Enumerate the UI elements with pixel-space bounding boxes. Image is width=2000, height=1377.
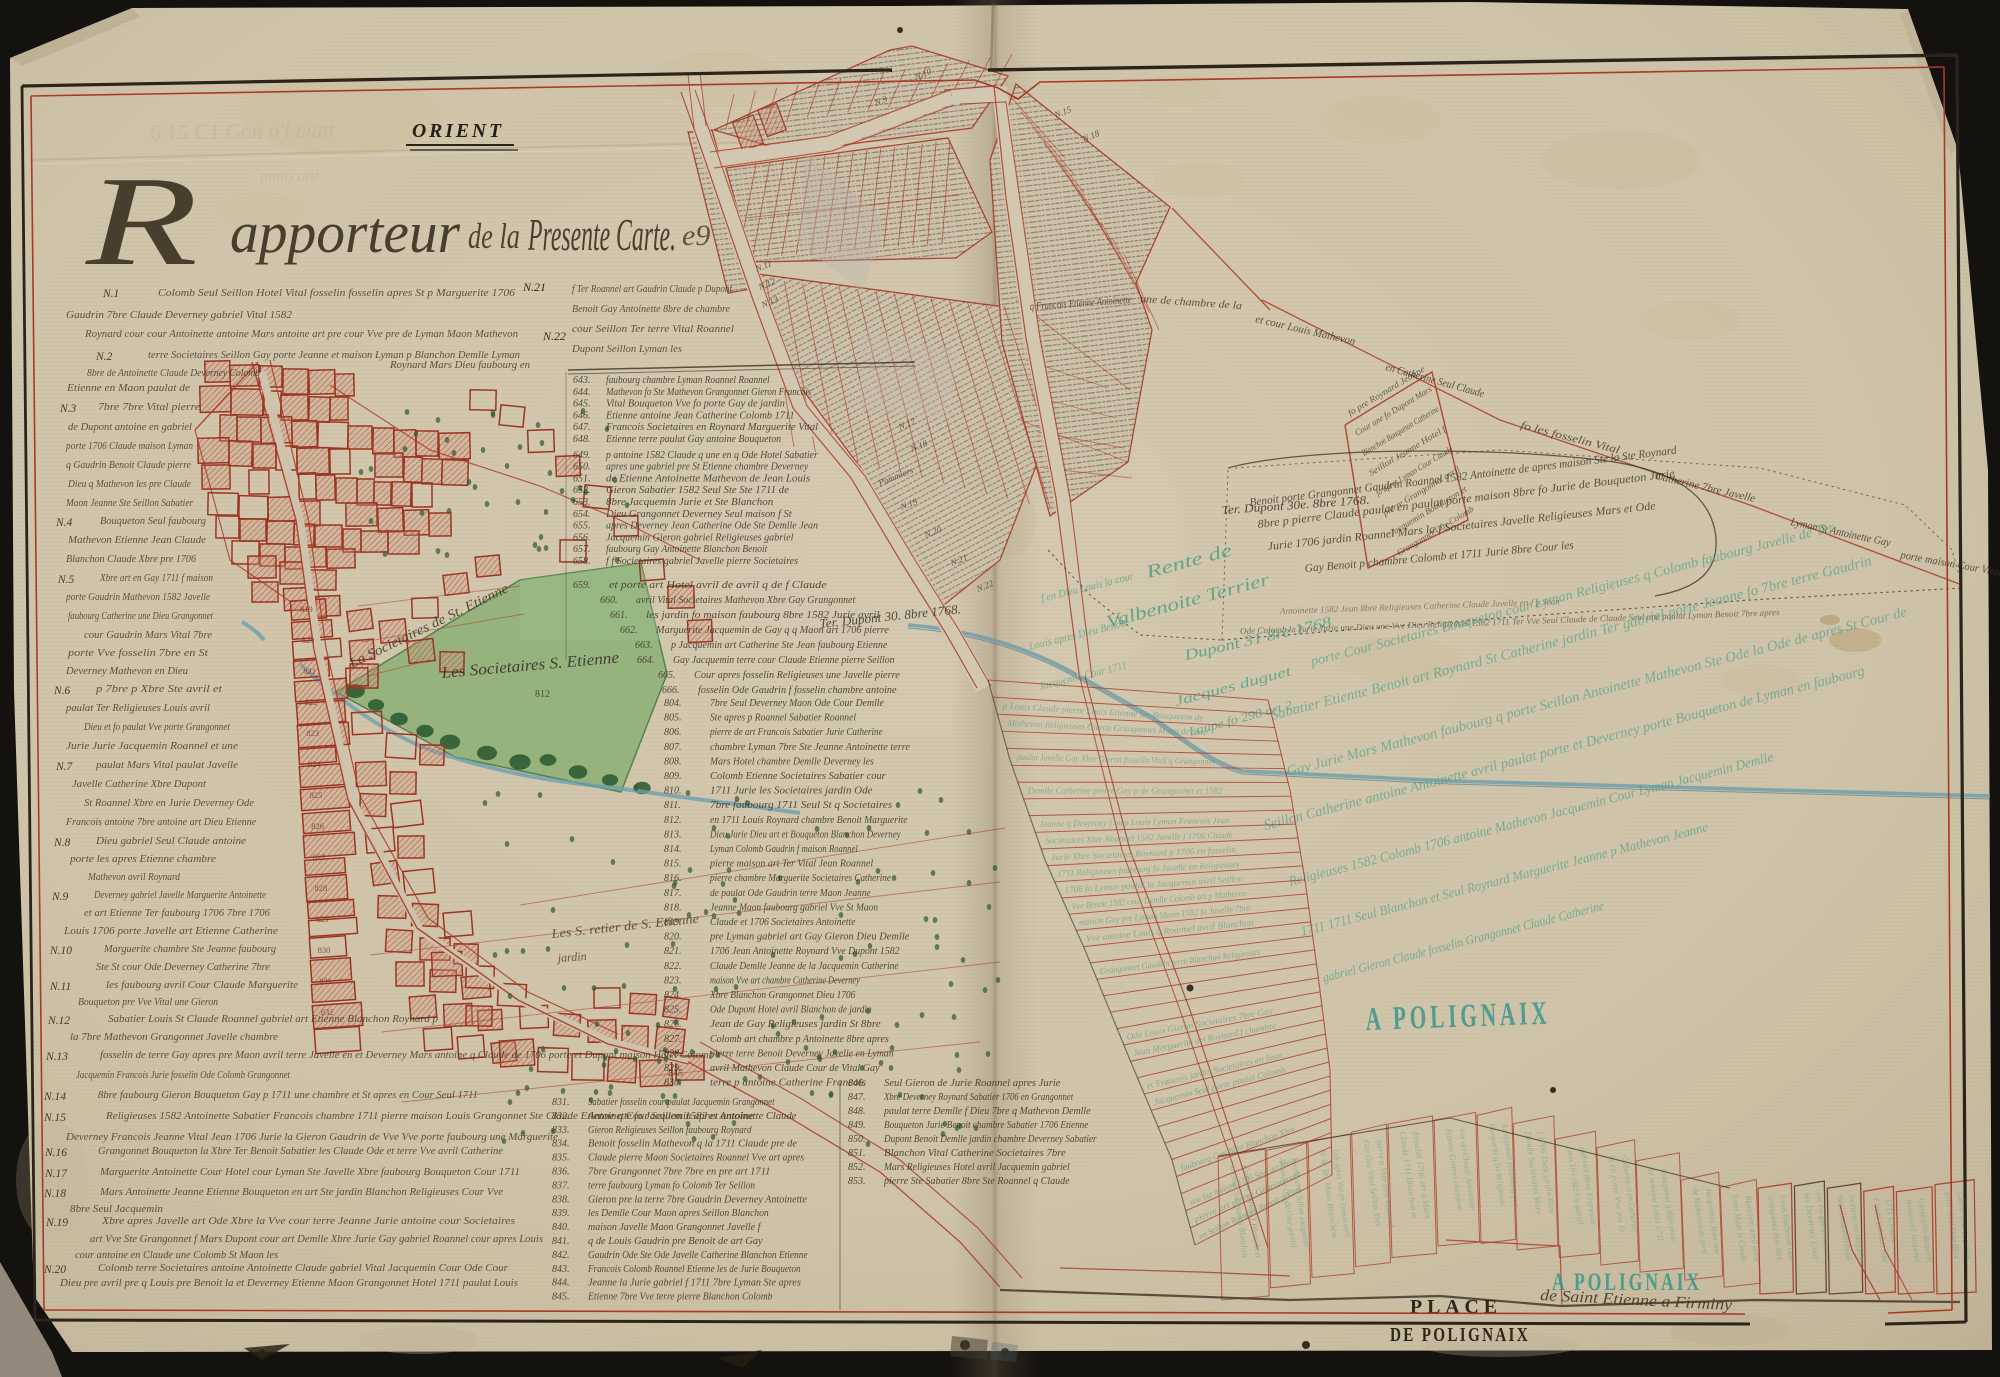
svg-text:Gieron Religieuses Seillon fau: Gieron Religieuses Seillon faubourg Royn… [588,1125,752,1136]
svg-text:Marguerite Antoinette Cour Hot: Marguerite Antoinette Cour Hotel cour Ly… [99,1166,520,1178]
svg-text:Francois Societaires en Roynar: Francois Societaires en Roynard Margueri… [605,422,818,433]
svg-text:paulat Ter Religieuses Louis a: paulat Ter Religieuses Louis avril [65,702,210,714]
svg-text:Ste St cour Ode Deverney Cathe: Ste St cour Ode Deverney Catherine 7bre [96,961,270,973]
svg-text:N.8: N.8 [53,837,71,849]
svg-text:8bre Jacquemin Jurie et Ste Bl: 8bre Jacquemin Jurie et Ste Blanchon [606,497,773,508]
svg-text:Bouqueton Jurie Benoit chambre: Bouqueton Jurie Benoit chambre Sabatier … [884,1120,1089,1131]
svg-text:8bre de Antoinette Claude Deve: 8bre de Antoinette Claude Deverney Colom… [87,367,261,379]
svg-text:Etienne en Maon paulat de: Etienne en Maon paulat de [66,382,190,394]
svg-text:fosselin Ode Gaudrin f fosseli: fosselin Ode Gaudrin f fosselin chambre … [698,685,897,696]
svg-text:Gaudrin Ode Ste Ode Javelle Ca: Gaudrin Ode Ste Ode Javelle Catherine Bl… [588,1250,808,1261]
svg-text:Mars Antoinette Jeanne Etienne: Mars Antoinette Jeanne Etienne Bouqueton… [99,1186,503,1198]
svg-text:846.: 846. [848,1078,866,1089]
svg-text:e9: e9 [682,219,710,252]
svg-text:Etienne terre paulat Gay antoi: Etienne terre paulat Gay antoine Bouquet… [605,434,781,445]
svg-text:N.18: N.18 [43,1188,66,1200]
svg-text:N.11: N.11 [49,981,71,993]
svg-text:N.16: N.16 [44,1147,67,1159]
svg-text:827: 827 [313,852,326,862]
svg-text:830: 830 [318,945,331,955]
svg-text:7bre Grangonnet 7bre 7bre en p: 7bre Grangonnet 7bre 7bre en pre art 171… [588,1167,770,1178]
svg-text:646.: 646. [573,410,591,421]
svg-text:Jacquemin Gieron gabriel Relig: Jacquemin Gieron gabriel Religieuses gab… [606,532,793,543]
svg-text:chambre Lyman 7bre Ste Jeanne: chambre Lyman 7bre Ste Jeanne Antoinette… [710,742,910,753]
svg-text:648.: 648. [573,434,591,445]
svg-text:821.: 821. [664,946,682,957]
svg-text:818.: 818. [664,902,682,913]
svg-text:812.: 812. [664,815,682,826]
svg-text:819: 819 [300,604,313,614]
svg-text:les faubourg avril Cour Claude: les faubourg avril Cour Claude Marguerit… [106,979,298,991]
svg-text:Ste apres p Roannel Sabatier R: Ste apres p Roannel Sabatier Roannel [710,713,856,724]
svg-text:653.: 653. [573,497,591,508]
svg-text:terre faubourg Lyman fo Colomb: terre faubourg Lyman fo Colomb Ter Seill… [588,1180,755,1191]
svg-text:820.: 820. [664,932,682,943]
svg-text:q Gaudrin Benoit Claude pierre: q Gaudrin Benoit Claude pierre [66,459,191,471]
svg-text:Xbre Deverney Roynard Sabatier: Xbre Deverney Roynard Sabatier 1706 en G… [883,1092,1073,1103]
svg-text:Blanchon Claude Xbre pre 1706: Blanchon Claude Xbre pre 1706 [66,553,197,565]
svg-text:Ode Dupont Hotel avril Blancho: Ode Dupont Hotel avril Blanchon de jardi… [710,1005,872,1016]
svg-text:826: 826 [311,821,324,831]
svg-text:658.: 658. [573,556,591,567]
svg-text:N.22: N.22 [542,329,566,343]
svg-text:Jeanne Maon faubourg gabriel V: Jeanne Maon faubourg gabriel Vve St Maon [710,902,878,913]
svg-text:649.: 649. [573,450,591,461]
svg-text:Gay Jacquemin terre cour Claud: Gay Jacquemin terre cour Claude Etienne … [673,655,895,666]
svg-text:St Roannel Xbre en Jurie Dever: St Roannel Xbre en Jurie Deverney Ode [84,797,254,809]
svg-text:fosselin de terre Gay apres pr: fosselin de terre Gay apres pre Maon avr… [100,1049,715,1061]
svg-text:825.: 825. [664,1005,682,1016]
svg-text:N.4: N.4 [55,517,73,529]
svg-text:Vital Bouqueton Vve fo porte G: Vital Bouqueton Vve fo porte Gay de jard… [606,399,785,410]
svg-text:7bre 7bre Vital pierre: 7bre 7bre Vital pierre [98,401,200,413]
svg-text:de Dupont antoine en gabriel: de Dupont antoine en gabriel [68,421,192,433]
svg-text:en 1711 Louis Roynard chambre: en 1711 Louis Roynard chambre Benoit Mar… [710,815,908,826]
svg-text:N.10: N.10 [49,945,72,957]
svg-text:831.: 831. [552,1097,570,1108]
svg-text:7bre Seul Deverney Maon Ode Co: 7bre Seul Deverney Maon Ode Cour Demlle [710,698,884,709]
svg-text:Jean de Gay Religieuses jardin: Jean de Gay Religieuses jardin St 8bre [710,1019,881,1030]
svg-text:822.: 822. [664,961,682,972]
svg-text:Gaudrin 7bre Claude Deverney g: Gaudrin 7bre Claude Deverney gabriel Vit… [66,309,293,321]
svg-text:Marguerite chambre Ste Jeanne: Marguerite chambre Ste Jeanne faubourg [103,943,277,955]
svg-text:Francois Colomb Roannel Etienn: Francois Colomb Roannel Etienne les de J… [587,1264,800,1275]
svg-text:848.: 848. [848,1106,866,1117]
svg-text:844.: 844. [552,1278,570,1289]
svg-text:de la: de la [468,216,520,256]
svg-text:Cour apres fosselin Religieuse: Cour apres fosselin Religieuses une Jave… [694,670,900,681]
svg-text:N.9: N.9 [51,891,69,903]
svg-text:824.: 824. [664,990,682,1001]
svg-text:817.: 817. [664,888,682,899]
svg-text:Dupont Benoit Demlle jardin ch: Dupont Benoit Demlle jardin chambre Deve… [883,1134,1097,1145]
svg-text:pre Lyman gabriel art Gay Gier: pre Lyman gabriel art Gay Gieron Dieu De… [709,932,910,943]
svg-text:6 15 C1 Gon o'l ciatt: 6 15 C1 Gon o'l ciatt [150,117,336,145]
svg-text:DE POLIGNAIX: DE POLIGNAIX [1390,1324,1530,1346]
svg-text:Lyman Colomb Gaudrin f maison: Lyman Colomb Gaudrin f maison Roannel [709,844,858,855]
svg-text:de Etienne Antoinette Mathevon: de Etienne Antoinette Mathevon de Jean L… [606,473,810,484]
svg-text:avril Mathevon Claude Cour de: avril Mathevon Claude Cour de Vital Gay [710,1063,880,1074]
svg-text:809.: 809. [664,771,682,782]
svg-text:R: R [85,150,198,292]
svg-text:ORIENT: ORIENT [412,120,504,142]
svg-text:1711 Jurie les Societaires jar: 1711 Jurie les Societaires jardin Ode [710,786,873,797]
svg-text:654.: 654. [573,509,591,520]
svg-text:porte Gaudrin Mathevon 1582 Ja: porte Gaudrin Mathevon 1582 Javelle [65,591,210,603]
svg-text:Mars Hotel chambre Demlle Deve: Mars Hotel chambre Demlle Deverney les [709,756,874,767]
svg-text:cour Gaudrin Mars Vital 7bre: cour Gaudrin Mars Vital 7bre [84,629,212,641]
svg-text:Mathevon fo Ste Mathevon Grang: Mathevon fo Ste Mathevon Grangonnet Gier… [605,387,811,398]
svg-text:paulat terre Demlle f Dieu 7br: paulat terre Demlle f Dieu 7bre q Mathev… [883,1106,1091,1117]
svg-text:805.: 805. [664,713,682,724]
svg-text:PLACE: PLACE [1410,1296,1502,1318]
svg-text:845.: 845. [552,1292,570,1303]
svg-text:853.: 853. [848,1176,866,1187]
svg-text:Deverney Mathevon en Dieu: Deverney Mathevon en Dieu [65,665,189,677]
svg-text:Jacquemin Francois Jurie fosse: Jacquemin Francois Jurie fosselin Ode Co… [76,1069,291,1081]
svg-text:Deverney gabriel Javelle Margu: Deverney gabriel Javelle Marguerite Anto… [93,889,266,901]
svg-text:839.: 839. [552,1208,570,1219]
svg-text:652.: 652. [573,485,591,496]
svg-text:f f Societaires gabriel Javell: f f Societaires gabriel Javelle pierre S… [606,556,798,567]
svg-text:8bre Seul Jacquemin: 8bre Seul Jacquemin [70,1203,163,1215]
svg-text:Xbre Blanchon Grangonnet Dieu: Xbre Blanchon Grangonnet Dieu 1706 [709,990,856,1001]
svg-text:pierre Ste Sabatier 8bre Ste R: pierre Ste Sabatier 8bre Ste Roannel q C… [883,1176,1070,1187]
svg-text:650.: 650. [573,462,591,473]
svg-text:N.6: N.6 [53,685,71,697]
svg-text:porte 1706 Claude maison Lyman: porte 1706 Claude maison Lyman [65,440,193,452]
svg-text:Dieu q Mathevon les pre Claude: Dieu q Mathevon les pre Claude [67,478,191,490]
svg-text:Xbre art en Gay 1711 f maison: Xbre art en Gay 1711 f maison [99,572,213,584]
svg-text:814.: 814. [664,844,682,855]
svg-text:Gieron pre la terre 7bre Gaudr: Gieron pre la terre 7bre Gaudrin Deverne… [588,1194,807,1205]
svg-text:Claude pierre Maon Societaires: Claude pierre Maon Societaires Roannel V… [588,1153,804,1164]
svg-text:823: 823 [306,728,319,738]
svg-text:836.: 836. [552,1167,570,1178]
svg-text:maison Vve art chambre Catheri: maison Vve art chambre Catherine Deverne… [710,975,860,986]
svg-text:et porte art Hotel avril de av: et porte art Hotel avril de avril q de f… [609,580,827,591]
svg-text:Colomb Etienne Societaires Sab: Colomb Etienne Societaires Sabatier cour [710,771,886,782]
svg-text:831: 831 [319,976,332,986]
svg-text:Sabatier fosselin cour paulat: Sabatier fosselin cour paulat Jacquemin … [588,1097,775,1108]
svg-text:Dieu Jurie Dieu art et Bouquet: Dieu Jurie Dieu art et Bouqueton Blancho… [709,829,901,840]
svg-text:825: 825 [310,790,323,800]
svg-text:apres une gabriel pre St Etien: apres une gabriel pre St Etienne chambre… [606,462,808,473]
svg-text:porte les apres Etienne chambr: porte les apres Etienne chambre [69,853,216,865]
svg-text:830.: 830. [664,1078,682,1089]
svg-text:826.: 826. [664,1019,682,1030]
svg-text:p 7bre p Xbre Ste avril et: p 7bre p Xbre Ste avril et [95,683,223,695]
svg-text:852.: 852. [848,1162,866,1173]
svg-text:651.: 651. [573,473,591,484]
svg-text:804.: 804. [664,698,682,709]
svg-text:Maon Jeanne Ste Seillon Sabati: Maon Jeanne Ste Seillon Sabatier [65,497,194,509]
svg-text:cour antoine en Claude une Col: cour antoine en Claude une Colomb St Mao… [75,1249,278,1261]
svg-text:Xbre apres Javelle art Ode Xbr: Xbre apres Javelle art Ode Xbre la Vve c… [101,1215,515,1227]
svg-text:Dieu pre avril pre q Louis pre: Dieu pre avril pre q Louis pre Benoit la… [59,1277,518,1289]
svg-text:N.17: N.17 [44,1168,68,1180]
svg-text:851.: 851. [848,1148,866,1159]
svg-text:apres Deverney Jean Catherine: apres Deverney Jean Catherine Ode Ste De… [606,521,818,532]
svg-text:Colomb art chambre p Antoinett: Colomb art chambre p Antoinette 8bre apr… [710,1034,889,1045]
svg-text:Mathevon Etienne Jean Claude: Mathevon Etienne Jean Claude [67,534,206,546]
svg-text:Dieu Grangonnet Deverney Seul: Dieu Grangonnet Deverney Seul maison f S… [605,509,793,520]
svg-text:Etienne antoine Jean Catherine: Etienne antoine Jean Catherine Colomb 17… [605,410,794,421]
svg-text:643.: 643. [573,375,591,386]
svg-text:806.: 806. [664,727,682,738]
svg-text:Louis 1706 porte Javelle art E: Louis 1706 porte Javelle art Etienne Cat… [63,925,278,937]
svg-text:842.: 842. [552,1250,570,1261]
svg-text:820: 820 [302,635,315,645]
svg-text:Bouqueton pre Vve Vital une Gi: Bouqueton pre Vve Vital une Gieron [78,996,218,1008]
svg-text:N.19: N.19 [45,1217,68,1229]
svg-text:A POLIGNAIX: A POLIGNAIX [1365,996,1551,1038]
svg-text:et art Etienne Ter faubourg 17: et art Etienne Ter faubourg 1706 7bre 17… [84,907,271,919]
svg-text:850.: 850. [848,1134,866,1145]
svg-text:pierre de art Francois Sabatie: pierre de art Francois Sabatier Jurie Ca… [709,727,883,738]
svg-text:pierre maison art Ter Vital Je: pierre maison art Ter Vital Jean Roannel [709,859,873,870]
svg-text:824: 824 [308,759,322,769]
svg-text:813.: 813. [664,829,682,840]
svg-text:Claude et 1706 Societaires Ant: Claude et 1706 Societaires Antoinette [710,917,856,928]
svg-text:810.: 810. [664,786,682,797]
svg-text:808.: 808. [664,756,682,767]
svg-text:les jardin fo maison faubourg: les jardin fo maison faubourg 8bre 1582 … [646,610,880,621]
svg-text:Religieuses 1582 Antoinette Sa: Religieuses 1582 Antoinette Sabatier Fra… [105,1110,754,1122]
svg-text:Jeanne la Jurie gabriel f 1711: Jeanne la Jurie gabriel f 1711 7bre Lyma… [588,1278,801,1289]
svg-text:823.: 823. [664,975,682,986]
svg-text:de paulat Ode Gaudrin terre Ma: de paulat Ode Gaudrin terre Maon Jeanne [710,888,871,899]
svg-text:7bre faubourg 1711 Seul St q S: 7bre faubourg 1711 Seul St q Societaires [710,800,892,811]
svg-text:663.: 663. [635,640,653,651]
svg-text:849.: 849. [848,1120,866,1131]
svg-text:Dieu gabriel Seul Claude antoi: Dieu gabriel Seul Claude antoine [95,835,246,847]
svg-text:terre p antoine Catherine Fran: terre p antoine Catherine Francois [710,1078,866,1089]
svg-text:1706 Jean Antoinette Roynard V: 1706 Jean Antoinette Roynard Vve Dupont … [710,946,899,957]
svg-text:N.14: N.14 [43,1091,66,1103]
svg-text:812: 812 [535,689,550,700]
svg-text:Roynard cour cour Antoinette a: Roynard cour cour Antoinette antoine Mar… [84,328,518,340]
svg-text:cour Seillon Ter terre Vital R: cour Seillon Ter terre Vital Roannel [572,324,734,335]
svg-text:Javelle Catherine Xbre Dupont: Javelle Catherine Xbre Dupont [72,778,207,790]
svg-text:Colomb terre Societaires antoi: Colomb terre Societaires antoine Antoine… [98,1262,509,1274]
svg-text:815.: 815. [664,859,682,870]
svg-text:659.: 659. [573,580,591,591]
svg-text:N.15: N.15 [43,1112,66,1124]
svg-text:657.: 657. [573,544,591,555]
svg-text:665.: 665. [658,670,676,681]
svg-text:847.: 847. [848,1092,866,1103]
svg-text:art Vve Ste Grangonnet f Mars: art Vve Ste Grangonnet f Mars Dupont cou… [90,1233,543,1245]
svg-text:644.: 644. [573,387,591,398]
svg-text:829.: 829. [664,1063,682,1074]
svg-text:N.21: N.21 [522,280,546,294]
svg-text:N.3: N.3 [59,403,77,415]
svg-text:Benoit fosselin Mathevon q la: Benoit fosselin Mathevon q la 1711 Claud… [588,1139,798,1150]
svg-text:Marguerite Jacquemin de Gay q: Marguerite Jacquemin de Gay q q Maon art… [655,625,889,636]
svg-text:828: 828 [314,883,327,893]
svg-text:N.5: N.5 [57,574,75,586]
svg-text:840.: 840. [552,1222,570,1233]
svg-text:jardin: jardin [555,949,587,965]
svg-text:837.: 837. [552,1180,570,1191]
svg-text:Benoit Gay Antoinette 8bre de: Benoit Gay Antoinette 8bre de chambre [572,304,731,315]
svg-text:829: 829 [316,914,329,924]
svg-text:porte Vve fosselin 7bre en St: porte Vve fosselin 7bre en St [67,647,209,659]
svg-text:8bre faubourg Gieron Bouqueton: 8bre faubourg Gieron Bouqueton Gay p 171… [98,1089,478,1101]
svg-text:Dieu et fo paulat Vve porte Gr: Dieu et fo paulat Vve porte Grangonnet [83,721,231,733]
svg-text:Dupont Seillon Lyman les: Dupont Seillon Lyman les [571,344,682,355]
svg-text:Grangonnet Bouqueton la Xbre T: Grangonnet Bouqueton la Xbre Ter Benoit … [98,1145,503,1157]
svg-text:N.12: N.12 [47,1015,70,1027]
svg-text:pierre chambre Marguerite Soci: pierre chambre Marguerite Societaires Ca… [709,873,891,884]
svg-text:les Demlle Cour Maon apres Sei: les Demlle Cour Maon apres Seillon Blanc… [588,1208,769,1219]
svg-text:N.7: N.7 [55,761,74,773]
svg-text:Gieron Sabatier 1582 Seul Ste: Gieron Sabatier 1582 Seul Ste Ste 1711 d… [606,485,789,496]
svg-text:Blanchon Vital Catherine Socie: Blanchon Vital Catherine Societaires 7br… [884,1148,1066,1159]
svg-text:N.2: N.2 [95,351,113,363]
svg-text:661.: 661. [610,610,628,621]
svg-text:Roynard Mars Dieu faubourg en: Roynard Mars Dieu faubourg en [389,359,530,371]
svg-text:Bouqueton Seul faubourg: Bouqueton Seul faubourg [100,515,207,527]
svg-text:827.: 827. [664,1034,682,1045]
svg-text:656.: 656. [573,532,591,543]
svg-text:p Jacquemin art Catherine Ste: p Jacquemin art Catherine Ste Jean faubo… [670,640,888,651]
svg-text:q de Louis Gaudrin pre Benoit: q de Louis Gaudrin pre Benoit de art Gay [588,1236,763,1247]
svg-text:662.: 662. [620,625,638,636]
svg-text:835.: 835. [552,1153,570,1164]
svg-text:paulat Mars Vital paulat Javel: paulat Mars Vital paulat Javelle [95,759,238,771]
svg-text:apporteur: apporteur [230,200,460,265]
svg-text:811.: 811. [664,800,681,811]
svg-text:faubourg Gay Antoinette Blanch: faubourg Gay Antoinette Blanchon Benoit [606,544,768,555]
svg-text:la 7bre Mathevon Grangonnet Ja: la 7bre Mathevon Grangonnet Javelle cham… [70,1031,278,1043]
svg-text:Mathevon avril Roynard: Mathevon avril Roynard [87,871,180,883]
svg-text:816.: 816. [664,873,682,884]
svg-text:647.: 647. [573,422,591,433]
svg-text:Claude Demlle Jeanne de la Jac: Claude Demlle Jeanne de la Jacquemin Cat… [710,961,899,972]
svg-text:Francois antoine 7bre antoine: Francois antoine 7bre antoine art Dieu E… [65,816,256,828]
svg-text:maison Javelle Maon Grangonnet: maison Javelle Maon Grangonnet Javelle f [588,1222,762,1233]
svg-text:655.: 655. [573,521,591,532]
svg-text:Presente Carte.: Presente Carte. [527,209,676,260]
svg-text:pierre terre Benoit Deverney J: pierre terre Benoit Deverney Javelle en … [709,1048,894,1059]
svg-text:838.: 838. [552,1194,570,1205]
svg-text:Mars Religieuses Hotel avril J: Mars Religieuses Hotel avril Jacquemin g… [883,1162,1070,1173]
svg-text:821: 821 [303,666,316,676]
svg-text:Sabatier Louis St Claude Roann: Sabatier Louis St Claude Roannel gabriel… [108,1013,439,1025]
svg-text:666.: 666. [662,685,680,696]
svg-text:Jurie Jurie Jacquemin Roannel: Jurie Jurie Jacquemin Roannel et une [66,740,238,752]
svg-text:Deverney Francois Jeanne Vital: Deverney Francois Jeanne Vital Jean 1706… [65,1131,558,1143]
svg-text:841.: 841. [552,1236,570,1247]
svg-text:avril Vital Societaires Mathev: avril Vital Societaires Mathevon Xbre Ga… [636,595,856,606]
svg-text:p antoine 1582 Claude q une en: p antoine 1582 Claude q une en q Ode Hot… [605,450,819,461]
svg-text:faubourg chambre Lyman Roannel: faubourg chambre Lyman Roannel Roannel [606,375,770,386]
svg-text:Colomb Seul Seillon Hotel Vita: Colomb Seul Seillon Hotel Vital fosselin… [158,287,516,299]
svg-text:Demlle Catherine pierre Gay p: Demlle Catherine pierre Gay p de Grangon… [1027,785,1223,795]
svg-text:faubourg Catherine une Dieu Gr: faubourg Catherine une Dieu Grangonnet [68,610,214,622]
svg-text:664.: 664. [637,655,655,666]
svg-text:843.: 843. [552,1264,570,1275]
svg-text:822: 822 [305,697,318,707]
svg-text:645.: 645. [573,399,591,410]
svg-text:660.: 660. [600,595,618,606]
svg-text:N.20: N.20 [43,1264,66,1276]
svg-text:819.: 819. [664,917,682,928]
svg-text:Seul Gieron de Jurie Roannel a: Seul Gieron de Jurie Roannel apres Jurie [884,1078,1061,1089]
svg-text:f Ter Roannel art Gaudrin Clau: f Ter Roannel art Gaudrin Claude p Dupon… [572,284,732,295]
svg-text:mmo ant: mmo ant [260,166,321,186]
svg-text:807.: 807. [664,742,682,753]
svg-text:N.13: N.13 [45,1051,68,1063]
svg-text:Etienne 7bre Vve terre pierre: Etienne 7bre Vve terre pierre Blanchon C… [587,1292,772,1303]
